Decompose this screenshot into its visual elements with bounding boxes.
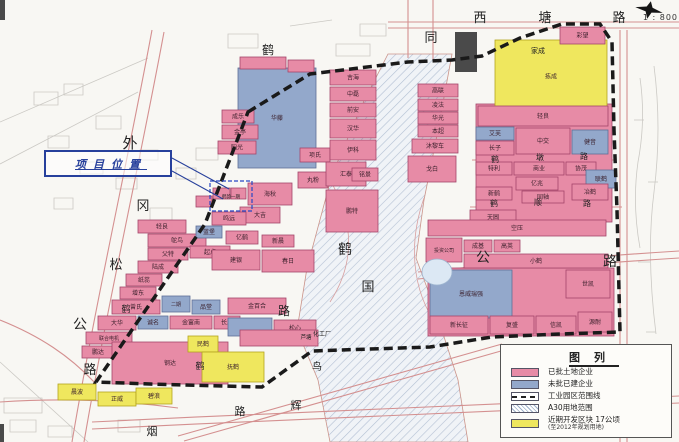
building-block: [455, 32, 477, 72]
road-name-char: 辉: [291, 399, 302, 412]
parcel-label: 抚鹤: [227, 363, 239, 371]
parcel-label: 金富南: [182, 319, 200, 327]
parcel-label: 父特: [162, 250, 174, 258]
parcel-label: 空压: [511, 224, 523, 232]
parcel-label: 恩威瑞强: [459, 290, 483, 298]
road-name-char: 塘: [538, 10, 551, 26]
road-name-char: 路: [583, 198, 591, 208]
parcel-label: 鸵鸟: [171, 237, 183, 245]
parcel-label: 中磊: [347, 90, 359, 98]
building-block: [0, 424, 4, 442]
parcel-label: 海秋: [264, 190, 276, 198]
road-name-char: 路: [278, 303, 290, 318]
parcel-label: 诚名: [147, 319, 159, 327]
road-name-char: 墩: [536, 152, 544, 162]
basemap-sketch: [54, 198, 73, 209]
legend-item-near-term-dev: 近期开发区块 17公顷 (至2012年规划用地): [511, 416, 663, 432]
parcel-label: 艾芙: [489, 130, 501, 138]
callout-leader-line: [172, 171, 223, 199]
parcel-label: 轻良: [156, 223, 168, 231]
legend-item-approved-land: 已批土地企业: [511, 368, 663, 377]
basemap-sketch: [48, 136, 69, 148]
parcel-label: 本超: [432, 127, 444, 135]
road-name-char: 路: [612, 10, 625, 26]
basemap-sketch: [10, 420, 36, 432]
road-name-char: 家成: [531, 46, 545, 55]
parcel-label: 复盛: [506, 321, 518, 329]
parcel-label: 前安: [347, 106, 359, 114]
parcel-label: 正威: [111, 395, 123, 403]
road-name-char: 鹤: [490, 198, 498, 208]
parcel-label: 曾氏: [130, 303, 142, 311]
legend-item-built-unapproved: 未批已建企业: [511, 380, 663, 389]
parcel-label: 鹏达: [92, 348, 104, 356]
parcel-label: 中交: [537, 137, 549, 145]
parcel-label: 彩望: [576, 32, 588, 40]
parcel-label: 增东: [132, 289, 144, 297]
north-arrow-icon: [634, 1, 664, 23]
basemap-sketch: [336, 44, 370, 56]
basemap-sketch: [0, 58, 148, 122]
callout-leader-line: [172, 158, 229, 189]
road-name-char: 鹤: [262, 42, 274, 57]
road-name-char: 路: [235, 405, 246, 418]
pink-swatch-icon: [511, 368, 539, 377]
building-block: [0, 0, 5, 20]
road-name-char: 路: [603, 254, 617, 270]
parcel-label: 汇泰: [340, 170, 352, 178]
parcel-label: 陆成: [152, 263, 164, 271]
road-name-char: 路: [83, 362, 96, 378]
road-name-char: 鹤: [491, 154, 499, 164]
parcel-label: 商业: [533, 165, 545, 173]
blue-swatch-icon: [511, 380, 539, 389]
parcel-label: 汉华: [347, 125, 359, 133]
road-name-char: 西: [473, 11, 486, 26]
parcel-label: 信凯: [550, 321, 562, 329]
road-name-char: 鹤: [121, 303, 130, 315]
parcel-label: 高联: [432, 87, 444, 95]
parcel-label: 特利: [488, 165, 500, 173]
road-name-char: 鹤韵一期: [222, 193, 240, 200]
parcel-label: 大华: [111, 319, 123, 327]
basemap-sketch: [360, 24, 386, 36]
parcel-label: 钢达: [164, 359, 176, 367]
road-name-char: 同: [424, 31, 437, 46]
parcel-label: 纸蕊: [138, 276, 150, 284]
parcel: [240, 57, 286, 69]
parcel-label: 成基: [472, 242, 484, 250]
road-name-char: 烟: [147, 424, 158, 438]
project-location-callout: 项目位置: [44, 150, 172, 177]
parcel-label: 联合电机: [99, 335, 119, 342]
road-name-char: 公: [476, 250, 490, 266]
parcel-label: 源耐: [589, 318, 601, 326]
parcel-label: 新晨: [272, 237, 284, 245]
road-name-char: 冈: [136, 199, 149, 214]
road-name-char: 鹤: [338, 242, 352, 258]
parcel-label: 碧浪: [148, 392, 160, 400]
road-name-char: 鹤: [195, 360, 204, 372]
parcel-label: 蓝堡: [203, 228, 215, 236]
basemap-sketch: [48, 426, 72, 437]
parcel-label: 拣成: [545, 73, 557, 81]
parcel-label: 吉海: [347, 74, 359, 82]
road-name-char: 路: [580, 151, 588, 161]
parcel-label: 沐黎车: [426, 142, 444, 150]
road-name-char: 公: [73, 317, 87, 333]
parcel-label: 二期: [171, 302, 181, 308]
parcel: [288, 60, 314, 72]
scanned-landuse-map-page: { "scale_label": "1 : 800", "callout": {…: [0, 0, 679, 442]
legend-item-a30-range: A30用地范围: [511, 404, 663, 413]
parcel-label: 戈白: [426, 165, 438, 173]
basemap-sketch: [150, 208, 172, 220]
road-name-char: 鸟: [312, 360, 322, 373]
parcel-label: 新鹤: [488, 190, 500, 198]
parcel-label: 凌法: [432, 101, 444, 109]
parcel-label: 联鹤: [595, 175, 607, 183]
parcel-label: 品堂: [200, 303, 212, 311]
parcel-label: 健音: [584, 138, 596, 146]
parcel-label: 轻良: [537, 112, 549, 120]
dashed-line-swatch-icon: [511, 392, 539, 401]
parcel-label: 协茂: [575, 165, 587, 173]
road-name-char: 顺: [534, 198, 542, 207]
parcel-label: 铭景: [359, 171, 371, 179]
basemap-sketch: [650, 66, 658, 334]
road-name-char: 芦塘: [300, 333, 312, 341]
parcel-label: 丸粉: [307, 176, 319, 184]
road-name-char: 化工厂: [313, 330, 331, 338]
parcel-label: 华光: [432, 114, 444, 122]
basemap-sketch: [196, 148, 218, 160]
parcel-label: 建银: [230, 256, 242, 264]
parcel-label: 冶鹤: [584, 188, 596, 196]
parcel-label: 鸣远: [223, 215, 235, 223]
basemap-sketch: [228, 34, 258, 48]
basemap-sketch: [290, 20, 332, 26]
basemap-sketch: [0, 362, 88, 442]
parcel-label: 成乐: [232, 113, 244, 121]
legend: 图列 已批土地企业 未批已建企业 工业园区范围线 A30用地范围 近期开发区块 …: [500, 344, 672, 438]
parcel-label: 高英: [501, 242, 513, 250]
parcel-label: 鹏特: [346, 207, 358, 215]
basemap-sketch: [96, 116, 121, 129]
road-name-char: 国: [361, 280, 374, 295]
legend-item-park-boundary: 工业园区范围线: [511, 392, 663, 401]
parcel-label: 亿鹤: [236, 234, 248, 242]
parcel-label: 华藤: [271, 114, 283, 122]
hatch-swatch-icon: [511, 404, 539, 413]
parcel-label: 大吉: [254, 211, 266, 219]
parcel-label: 金百合: [248, 302, 266, 310]
project-location-label: 项目位置: [75, 156, 147, 172]
basemap-sketch: [635, 78, 642, 248]
yellow-swatch-icon: [511, 419, 539, 428]
parcel-label: 伊科: [347, 146, 359, 154]
parcel-label: 长子: [489, 144, 501, 152]
parcel-label: 春日: [282, 257, 294, 265]
basemap-sketch: [118, 420, 140, 432]
parcel-label: 亿兆: [531, 180, 543, 188]
parcel-label: 新长征: [450, 321, 468, 329]
road-name-char: 松: [109, 258, 122, 273]
parcel-label: 投资公司: [434, 247, 454, 254]
legend-title: 图列: [511, 349, 663, 365]
parcel-label: 民鹤: [197, 340, 209, 348]
pond: [422, 259, 452, 285]
parcel-label: 项氏: [309, 151, 321, 159]
parcel-label: 晨波: [71, 388, 83, 396]
parcel-label: 世凯: [582, 280, 594, 288]
parcel-label: 小鹤: [530, 257, 542, 265]
